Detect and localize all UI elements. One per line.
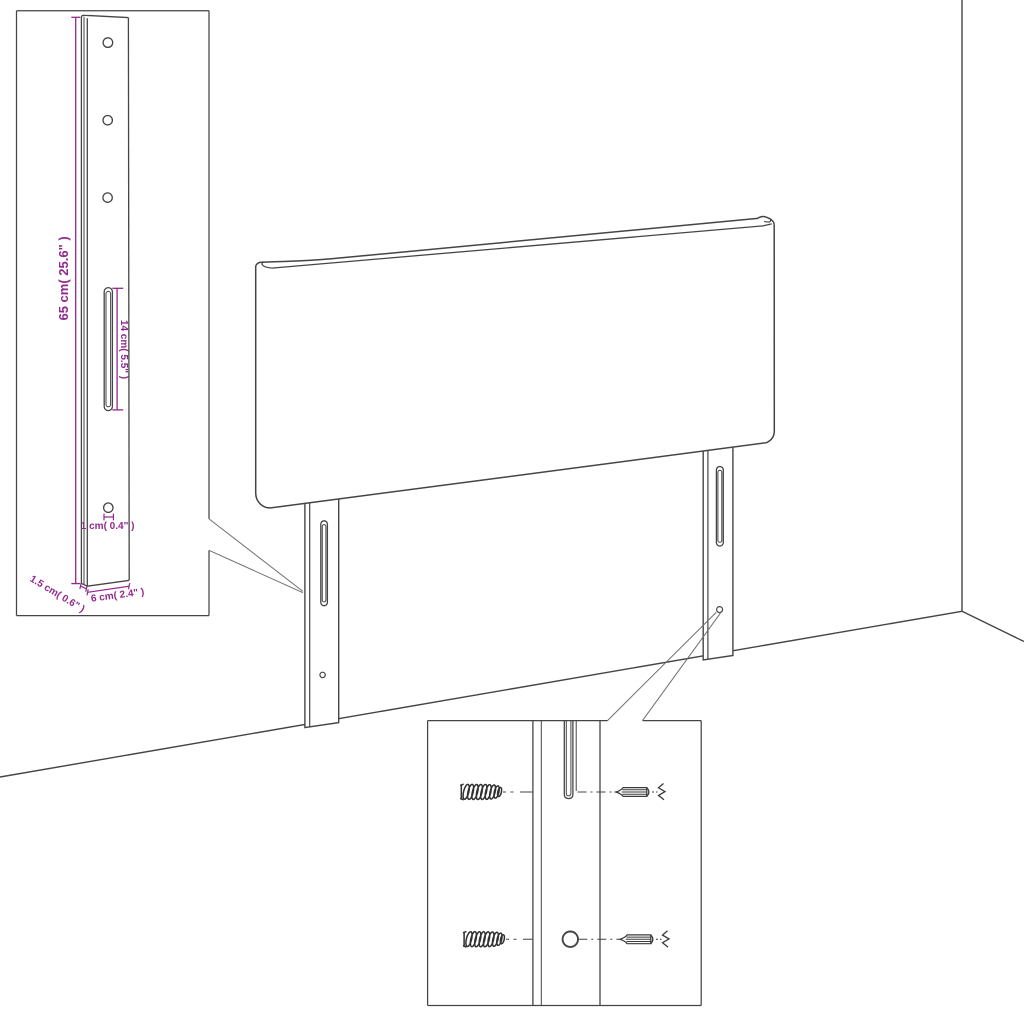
svg-text:65 cm( 25.6" ): 65 cm( 25.6" ) (56, 236, 71, 320)
svg-text:1 cm( 0.4" ): 1 cm( 0.4" ) (81, 521, 135, 532)
svg-text:14 cm( 5.5" ): 14 cm( 5.5" ) (118, 320, 129, 379)
